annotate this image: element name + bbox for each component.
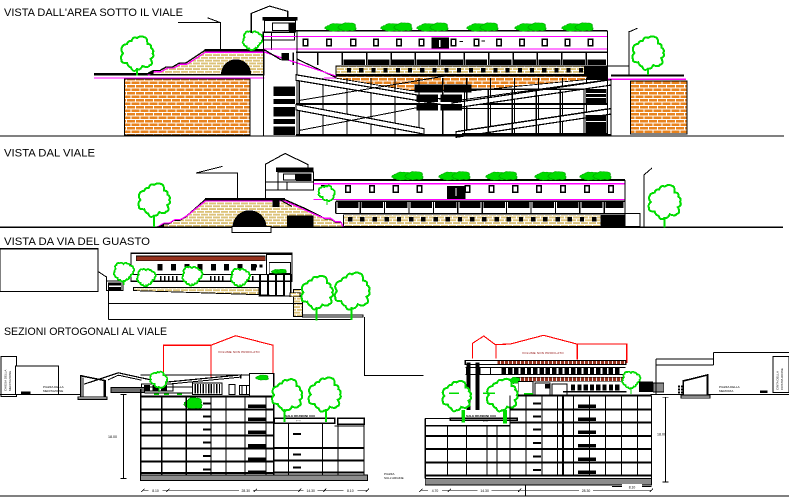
svg-text:SEZIONI ORTOGONALI AL VIALE: SEZIONI ORTOGONALI AL VIALE (4, 326, 167, 338)
svg-text:VISTA DALL'AREA SOTTO IL VIALE: VISTA DALL'AREA SOTTO IL VIALE (4, 7, 183, 19)
svg-text:SALE RIUNIONI XXX: SALE RIUNIONI XXX (285, 414, 316, 418)
svg-text:MEDITAZIONE: MEDITAZIONE (8, 371, 12, 391)
svg-text:CHIESA DELLA: CHIESA DELLA (4, 370, 8, 391)
svg-text:SULL'ARGINE: SULL'ARGINE (384, 476, 404, 480)
svg-text:COSTRUZIONE: COSTRUZIONE (780, 368, 784, 390)
svg-text:18.00: 18.00 (108, 435, 117, 439)
svg-text:4.70: 4.70 (432, 489, 439, 493)
svg-text:28.30: 28.30 (242, 489, 251, 493)
svg-text:14.30: 14.30 (306, 489, 315, 493)
svg-text:28.30: 28.30 (582, 489, 591, 493)
svg-text:+--+: +--+ (296, 420, 301, 423)
svg-text:VISTA DAL VIALE: VISTA DAL VIALE (4, 147, 95, 159)
svg-text:MEMORIA: MEMORIA (719, 389, 733, 393)
svg-text:14.30: 14.30 (480, 489, 489, 493)
svg-text:MEDITAZIONE: MEDITAZIONE (43, 389, 63, 393)
svg-text:8.10: 8.10 (152, 489, 159, 493)
svg-text:18.00: 18.00 (657, 433, 666, 437)
svg-text:VISTA DA VIA DEL GUASTO: VISTA DA VIA DEL GUASTO (4, 236, 150, 248)
svg-text:VOLUME NON PROFILATO: VOLUME NON PROFILATO (218, 350, 260, 354)
svg-text:SALE RIUNIONI XXX: SALE RIUNIONI XXX (466, 414, 497, 418)
svg-text:+--+: +--+ (483, 420, 488, 423)
svg-text:8.10: 8.10 (347, 489, 354, 493)
svg-text:8.10: 8.10 (629, 485, 636, 489)
svg-text:VOLUME NON PROFILATO: VOLUME NON PROFILATO (522, 351, 564, 355)
svg-text:CINTA DELLA: CINTA DELLA (776, 371, 780, 390)
